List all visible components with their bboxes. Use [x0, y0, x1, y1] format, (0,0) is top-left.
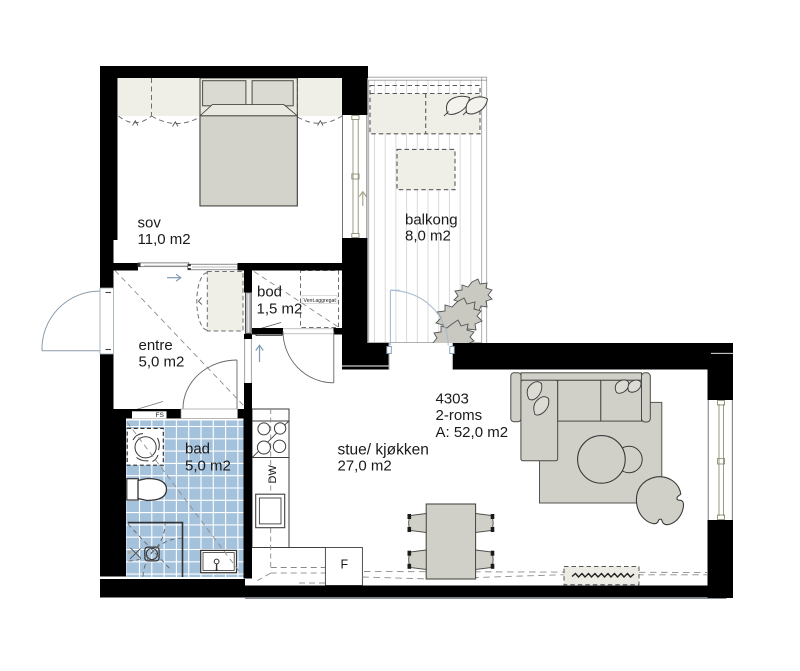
svg-text:A: 52,0 m2: A: 52,0 m2: [436, 424, 509, 441]
svg-text:5,0 m2: 5,0 m2: [139, 354, 185, 371]
svg-text:27,0 m2: 27,0 m2: [338, 458, 392, 475]
svg-text:2-roms: 2-roms: [436, 407, 483, 424]
svg-text:4303: 4303: [436, 391, 469, 408]
svg-text:bod: bod: [257, 284, 282, 301]
svg-text:11,0 m2: 11,0 m2: [138, 231, 191, 248]
svg-text:entre: entre: [139, 337, 173, 354]
svg-text:balkong: balkong: [405, 212, 458, 229]
svg-text:8,0 m2: 8,0 m2: [405, 228, 451, 245]
svg-text:sov: sov: [138, 215, 162, 232]
svg-text:DW: DW: [267, 465, 279, 484]
svg-text:Vent.aggregat: Vent.aggregat: [304, 298, 337, 304]
svg-text:5,0 m2: 5,0 m2: [185, 458, 231, 475]
svg-text:F: F: [341, 558, 349, 572]
svg-text:stue/ kjøkken: stue/ kjøkken: [338, 442, 429, 459]
svg-text:bad: bad: [185, 441, 210, 458]
svg-text:1,5 m2: 1,5 m2: [257, 301, 303, 318]
svg-text:FS: FS: [156, 412, 165, 419]
